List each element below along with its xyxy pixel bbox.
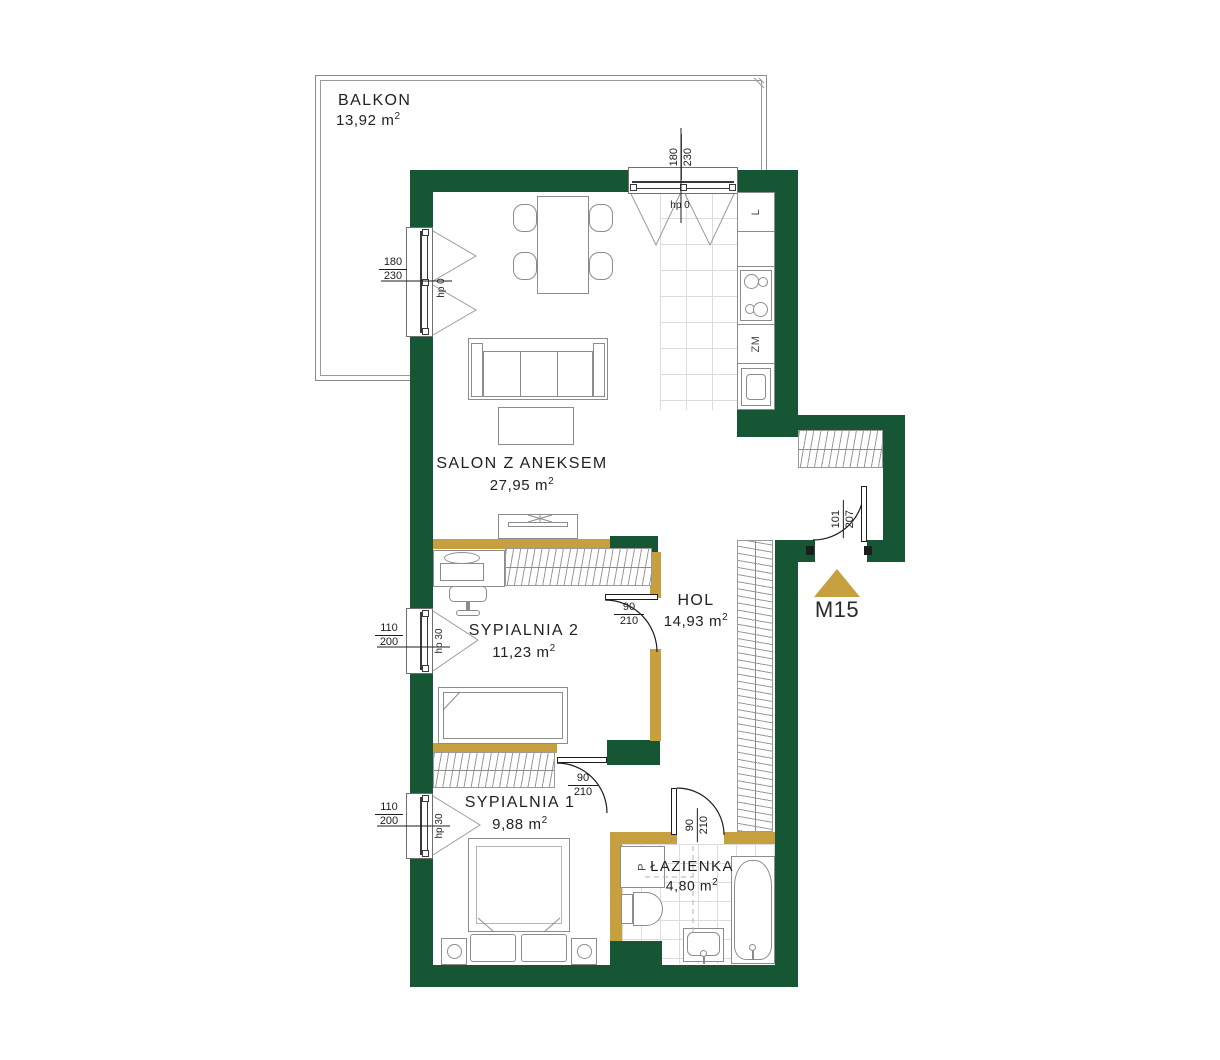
fridge-label: L bbox=[737, 194, 775, 230]
room-area-lazienka: 4,80 m2 bbox=[640, 877, 744, 894]
window-pane bbox=[420, 797, 428, 855]
window-handle bbox=[422, 795, 429, 802]
nightstand-lamp bbox=[577, 944, 592, 959]
room-area-balkon: 13,92 m2 bbox=[336, 111, 401, 129]
printer-body bbox=[440, 563, 484, 581]
kitchen-cabinet-dishwasher: ZM bbox=[737, 324, 775, 364]
nightstand-lamp bbox=[447, 944, 462, 959]
dining-chair bbox=[513, 252, 537, 280]
kitchen-sink-basin bbox=[746, 374, 766, 400]
window-handle bbox=[422, 279, 429, 286]
door-leaf-syp1 bbox=[557, 757, 607, 763]
room-name-hol: HOL bbox=[664, 592, 728, 610]
sofa-cushion-divider bbox=[557, 351, 558, 397]
wall-bottom bbox=[410, 965, 798, 987]
dim-door-syp2: 90210 bbox=[614, 601, 644, 627]
dining-chair bbox=[589, 204, 613, 232]
door-leaf-syp2 bbox=[605, 594, 658, 600]
wall-right-upper bbox=[775, 170, 798, 437]
wardrobe-syp1 bbox=[433, 752, 555, 788]
entry-direction-icon bbox=[814, 569, 860, 597]
wall-block-mid bbox=[607, 740, 660, 765]
partition-syp2-hol-lower bbox=[650, 649, 661, 741]
window-handle bbox=[729, 184, 736, 191]
window-handle bbox=[680, 184, 687, 191]
dim-window-kitchen: 180230 bbox=[668, 134, 694, 180]
door-leaf-entry bbox=[861, 486, 867, 542]
sofa-armrest bbox=[593, 343, 605, 397]
wall-right-lower bbox=[775, 540, 798, 987]
dim-window-syp2: 110200 bbox=[375, 622, 403, 648]
room-area-syp1: 9,88 m2 bbox=[440, 815, 600, 833]
partition-bath-top-left bbox=[610, 832, 677, 844]
sofa bbox=[468, 338, 608, 400]
dining-chair bbox=[513, 204, 537, 232]
dishwasher-label: ZM bbox=[737, 326, 775, 362]
desk-chair-seat bbox=[449, 586, 487, 602]
unit-marker-label: M15 bbox=[810, 597, 864, 623]
window-handle bbox=[422, 328, 429, 335]
stove-burner bbox=[758, 277, 768, 287]
wardrobe-divider bbox=[434, 770, 554, 771]
kitchen-floor-tiles bbox=[660, 192, 737, 410]
window-handle bbox=[422, 610, 429, 617]
coffee-table bbox=[498, 407, 574, 445]
room-name-salon: SALON Z ANEKSEM bbox=[432, 455, 612, 473]
wardrobe-divider bbox=[755, 541, 756, 831]
sofa-cushion-divider bbox=[520, 351, 521, 397]
wall-block-bath-corner bbox=[610, 941, 662, 967]
printer-top bbox=[444, 552, 480, 564]
bed-double-blanket bbox=[476, 846, 562, 924]
sofa-seat bbox=[483, 351, 593, 397]
dim-window-salon: 180230 bbox=[379, 256, 407, 282]
door-leaf-bath bbox=[671, 788, 677, 835]
dim-sill-salon: hp 0 bbox=[436, 266, 450, 310]
window-syp2-left bbox=[406, 608, 433, 674]
kitchen-cabinet-fridge: L bbox=[737, 192, 775, 232]
wardrobe-divider bbox=[506, 567, 651, 568]
wall-top bbox=[410, 170, 798, 192]
room-area-hol: 14,93 m2 bbox=[652, 612, 740, 630]
window-handle bbox=[422, 229, 429, 236]
toilet-tank bbox=[621, 894, 633, 924]
floor-plan: BALKON 13,92 m2 bbox=[0, 0, 1220, 1060]
window-syp1-left bbox=[406, 793, 433, 859]
desk-chair-base bbox=[456, 610, 480, 616]
dining-chair bbox=[589, 252, 613, 280]
room-name-lazienka: ŁAZIENKA bbox=[640, 858, 744, 875]
wardrobe-vestibule bbox=[798, 430, 883, 468]
sink-tap-stem bbox=[703, 956, 705, 964]
tv-screen bbox=[508, 522, 568, 527]
bed-pillow bbox=[470, 934, 516, 962]
window-pane bbox=[420, 612, 428, 670]
door-jamb bbox=[806, 546, 814, 555]
dim-door-bath: 90210 bbox=[684, 808, 710, 842]
stove-burner bbox=[744, 274, 759, 289]
room-area-syp2: 11,23 m2 bbox=[444, 643, 604, 661]
wardrobe-syp2 bbox=[505, 548, 652, 586]
window-salon-left bbox=[406, 227, 433, 337]
dim-sill-kitchen: hp 0 bbox=[660, 200, 700, 211]
room-name-syp2: SYPIALNIA 2 bbox=[444, 622, 604, 640]
dim-window-syp1: 110200 bbox=[375, 801, 403, 827]
kitchen-cabinet bbox=[737, 231, 775, 267]
partition-bath-top-right bbox=[724, 832, 775, 844]
wardrobe-hall bbox=[737, 540, 773, 832]
wall-vestibule-stub-right bbox=[867, 540, 905, 562]
window-handle bbox=[630, 184, 637, 191]
dining-table bbox=[537, 196, 589, 294]
bed-pillow bbox=[521, 934, 567, 962]
bed-single-mattress bbox=[443, 692, 563, 739]
room-name-syp1: SYPIALNIA 1 bbox=[440, 794, 600, 812]
room-area-salon: 27,95 m2 bbox=[432, 476, 612, 494]
room-name-balkon: BALKON bbox=[338, 92, 411, 110]
door-jamb bbox=[864, 546, 872, 555]
stove bbox=[740, 270, 772, 321]
sofa-armrest bbox=[471, 343, 483, 397]
wardrobe-divider bbox=[799, 449, 882, 450]
window-handle bbox=[422, 850, 429, 857]
stove-burner bbox=[753, 302, 768, 317]
wall-kitchen-end bbox=[737, 410, 775, 437]
bathtub-tap-stem bbox=[752, 950, 754, 959]
window-handle bbox=[422, 665, 429, 672]
dim-door-entry: 101207 bbox=[830, 500, 856, 538]
